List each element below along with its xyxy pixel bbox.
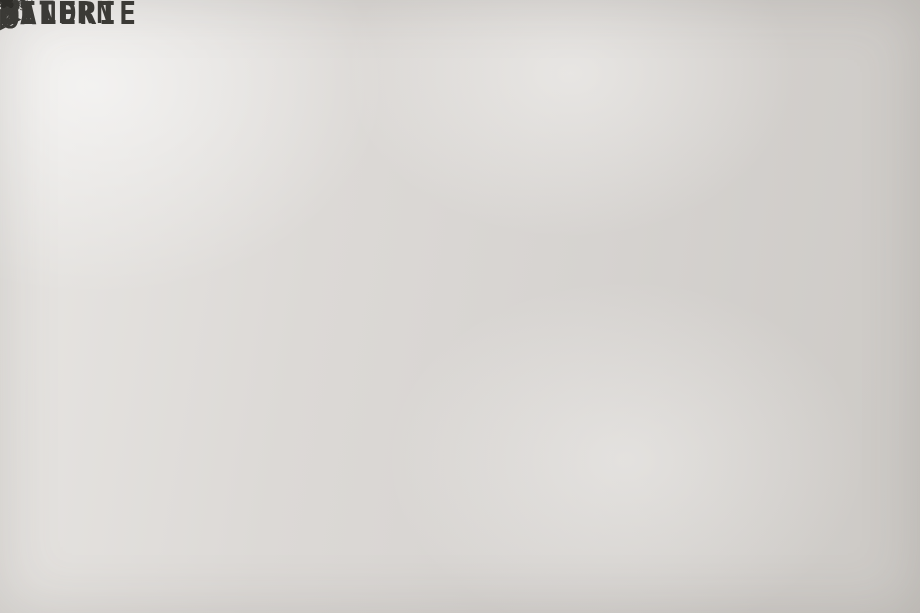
- floor-plan: 8 87 FBH-V Φ175 Φ125 Φ110 Φ110 125 100 -…: [0, 0, 920, 613]
